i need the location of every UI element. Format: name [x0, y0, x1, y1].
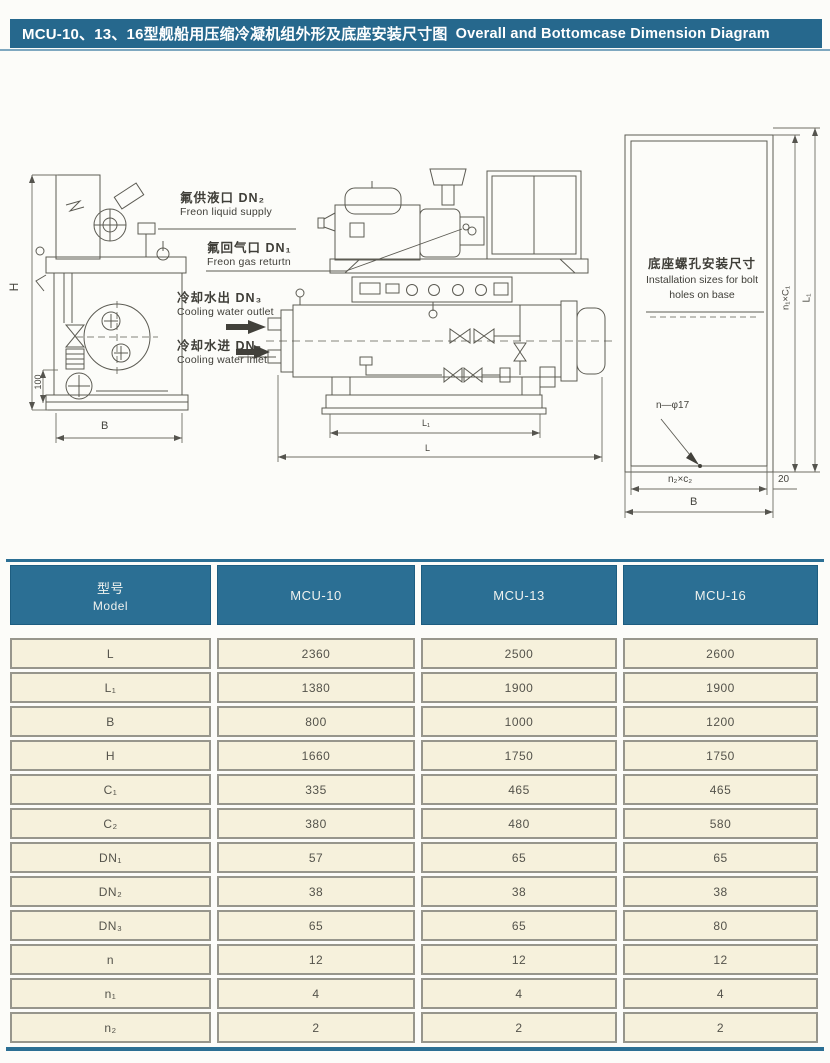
value-cell: 65: [217, 910, 415, 941]
value-cell: 580: [623, 808, 818, 839]
dim-L1-front: L₁: [420, 418, 432, 428]
value-cell: 12: [421, 944, 617, 975]
value-cell: 335: [217, 774, 415, 805]
value-cell: 465: [421, 774, 617, 805]
base-note-en2: holes on base: [627, 289, 777, 302]
page-title-zh: MCU-10、13、16型舰船用压缩冷凝机组外形及底座安装尺寸图: [22, 23, 448, 44]
dim-100: 100: [33, 374, 43, 389]
header-mcu10: MCU-10: [217, 565, 415, 625]
dim-L1-plan: L₁: [802, 294, 813, 303]
param-cell: L₁: [10, 672, 211, 703]
dim-n2xc2: n₂×c₂: [666, 474, 694, 485]
value-cell: 1900: [623, 672, 818, 703]
header-model-en: Model: [93, 599, 128, 613]
param-cell: n: [10, 944, 211, 975]
header-mcu13: MCU-13: [421, 565, 617, 625]
param-cell: n₁: [10, 978, 211, 1009]
param-cell: DN₃: [10, 910, 211, 941]
label-cooling-water-inlet: 冷却水进 DN₃ Cooling water inlet: [177, 339, 267, 366]
freon-liquid-zh: 氟供液口 DN₂: [180, 191, 272, 205]
param-cell: DN₂: [10, 876, 211, 907]
page-title-en: Overall and Bottomcase Dimension Diagram: [456, 26, 770, 42]
table-row: L₁ 1380 1900 1900: [0, 672, 830, 703]
value-cell: 1200: [623, 706, 818, 737]
value-cell: 65: [623, 842, 818, 873]
base-plan-note: 底座螺孔安装尺寸 Installation sizes for bolt hol…: [627, 253, 777, 301]
freon-liquid-en: Freon liquid supply: [180, 206, 272, 218]
header-model-cell: 型号 Model: [10, 565, 211, 625]
table-row: H 1660 1750 1750: [0, 740, 830, 771]
water-inlet-zh: 冷却水进 DN₃: [177, 339, 267, 353]
value-cell: 57: [217, 842, 415, 873]
value-cell: 4: [421, 978, 617, 1009]
dimension-lines: [32, 128, 820, 518]
technical-drawing: [0, 105, 830, 550]
table-bottom-rule: [6, 1047, 824, 1051]
value-cell: 2360: [217, 638, 415, 669]
value-cell: 480: [421, 808, 617, 839]
value-cell: 380: [217, 808, 415, 839]
value-cell: 65: [421, 842, 617, 873]
value-cell: 2: [217, 1012, 415, 1043]
value-cell: 2600: [623, 638, 818, 669]
base-note-zh: 底座螺孔安装尺寸: [627, 253, 777, 272]
table-top-rule: [6, 559, 824, 562]
dim-H: H: [7, 283, 21, 292]
value-cell: 1900: [421, 672, 617, 703]
param-cell: B: [10, 706, 211, 737]
page-title: MCU-10、13、16型舰船用压缩冷凝机组外形及底座安装尺寸图 Overall…: [10, 19, 822, 48]
title-underline: [0, 49, 830, 51]
param-cell: n₂: [10, 1012, 211, 1043]
param-cell: C₂: [10, 808, 211, 839]
label-freon-liquid-supply: 氟供液口 DN₂ Freon liquid supply: [180, 191, 272, 218]
page: MCU-10、13、16型舰船用压缩冷凝机组外形及底座安装尺寸图 Overall…: [0, 0, 830, 1063]
param-cell: C₁: [10, 774, 211, 805]
water-outlet-zh: 冷却水出 DN₃: [177, 291, 274, 305]
table-row: L 2360 2500 2600: [0, 638, 830, 669]
label-cooling-water-outlet: 冷却水出 DN₃ Cooling water outlet: [177, 291, 274, 318]
dim-L-front: L: [423, 443, 432, 453]
dim-bolt-holes: n—φ17: [656, 400, 689, 411]
value-cell: 4: [217, 978, 415, 1009]
table-body: L 2360 2500 2600 L₁ 1380 1900 1900 B 800…: [0, 638, 830, 1043]
value-cell: 38: [421, 876, 617, 907]
value-cell: 1750: [421, 740, 617, 771]
dim-20: 20: [776, 474, 791, 485]
param-cell: L: [10, 638, 211, 669]
table-row: n₁ 4 4 4: [0, 978, 830, 1009]
table-row: B 800 1000 1200: [0, 706, 830, 737]
freon-gas-zh: 氟回气口 DN₁: [207, 241, 292, 255]
value-cell: 1000: [421, 706, 617, 737]
table-header-row: 型号 Model MCU-10 MCU-13 MCU-16: [0, 565, 830, 625]
param-cell: DN₁: [10, 842, 211, 873]
base-plan-view: [625, 135, 773, 472]
dimension-table: 型号 Model MCU-10 MCU-13 MCU-16 L 2360 250…: [0, 559, 830, 1051]
table-row: n 12 12 12: [0, 944, 830, 975]
value-cell: 12: [623, 944, 818, 975]
table-row: C₂ 380 480 580: [0, 808, 830, 839]
dim-n1xC1: n₁×C₁: [781, 286, 792, 310]
value-cell: 80: [623, 910, 818, 941]
header-model-zh: 型号: [97, 578, 124, 597]
freon-gas-en: Freon gas returtn: [207, 256, 292, 268]
table-row: DN₁ 57 65 65: [0, 842, 830, 873]
value-cell: 2: [421, 1012, 617, 1043]
water-outlet-arrow-icon: [226, 320, 266, 334]
value-cell: 38: [217, 876, 415, 907]
value-cell: 65: [421, 910, 617, 941]
table-row: C₁ 335 465 465: [0, 774, 830, 805]
water-inlet-en: Cooling water inlet: [177, 354, 267, 366]
header-mcu16: MCU-16: [623, 565, 818, 625]
value-cell: 38: [623, 876, 818, 907]
value-cell: 1660: [217, 740, 415, 771]
value-cell: 1380: [217, 672, 415, 703]
water-outlet-en: Cooling water outlet: [177, 306, 274, 318]
param-cell: H: [10, 740, 211, 771]
value-cell: 1750: [623, 740, 818, 771]
dim-B-left: B: [101, 420, 108, 432]
dim-B-plan: B: [688, 496, 699, 508]
value-cell: 800: [217, 706, 415, 737]
table-row: DN₃ 65 65 80: [0, 910, 830, 941]
value-cell: 2: [623, 1012, 818, 1043]
label-freon-gas-return: 氟回气口 DN₁ Freon gas returtn: [207, 241, 292, 268]
value-cell: 465: [623, 774, 818, 805]
base-note-en1: Installation sizes for bolt: [627, 274, 777, 287]
value-cell: 12: [217, 944, 415, 975]
value-cell: 2500: [421, 638, 617, 669]
table-row: DN₂ 38 38 38: [0, 876, 830, 907]
table-row: n₂ 2 2 2: [0, 1012, 830, 1043]
left-side-view: [36, 175, 188, 410]
value-cell: 4: [623, 978, 818, 1009]
